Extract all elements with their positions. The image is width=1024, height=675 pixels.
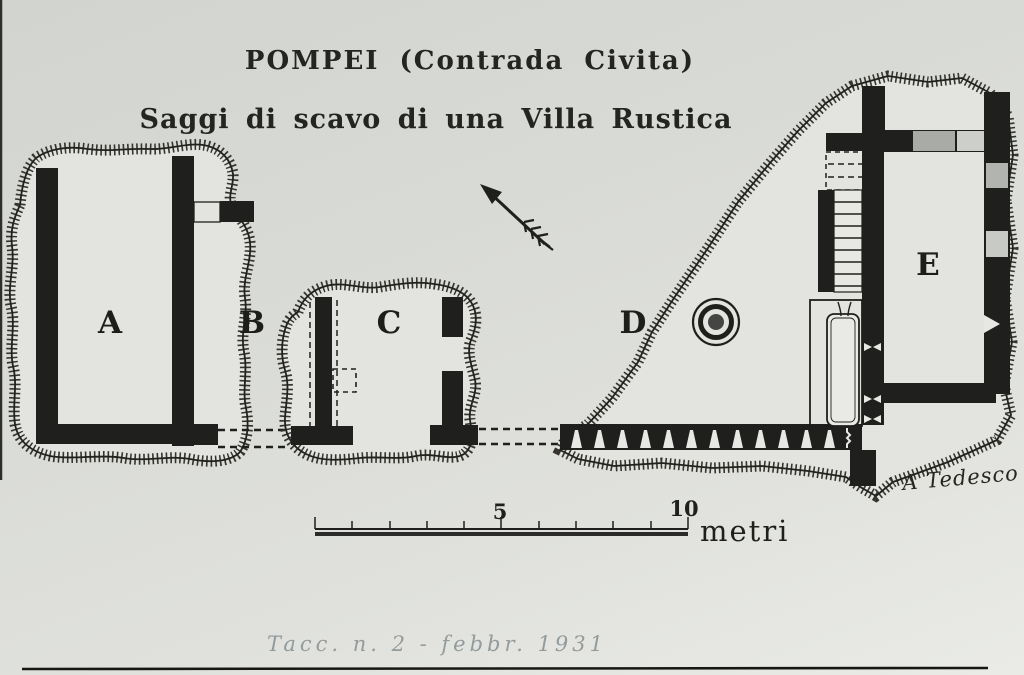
room-a-top-stub — [220, 201, 254, 222]
plan-title-line2: Saggi di scavo di una Villa Rustica — [140, 104, 733, 135]
scale-label-5: 5 — [493, 499, 508, 524]
scale-label-10: 10 — [669, 496, 698, 521]
room-a-left-wall — [36, 168, 58, 438]
e-right-opening-light — [986, 231, 1008, 257]
area-label-b: B — [239, 305, 265, 341]
room-a-wall-foot — [194, 427, 218, 445]
handwritten-note: Tacc. n. 2 - febbr. 1931 — [267, 632, 607, 656]
area-label-c: C — [377, 305, 402, 341]
room-c-right-top-wall — [442, 297, 463, 337]
room-c-right-foot — [430, 425, 478, 445]
room-a-doorway — [194, 202, 220, 222]
scan-edge-bottom — [22, 668, 988, 669]
area-label-a: A — [97, 305, 123, 341]
wall-stub-below — [850, 450, 876, 486]
trench-a-b — [10, 144, 254, 461]
room-c-right-bottom-wall — [442, 371, 463, 428]
e-right-opening — [986, 163, 1008, 188]
area-label-d: D — [620, 305, 647, 341]
scale-bar: 5 10 metri — [315, 496, 789, 548]
scanned-plan-page: POMPEI (Contrada Civita) Saggi di scavo … — [0, 0, 1024, 675]
basin-inner — [827, 314, 859, 426]
room-a-right-wall — [172, 156, 194, 446]
trench-d-e — [560, 76, 1013, 496]
e-bottom-wall — [862, 383, 996, 403]
room-c-left-wall — [315, 297, 332, 433]
scale-unit-label: metri — [700, 514, 789, 548]
stair-flight — [834, 190, 862, 292]
north-arrow-icon — [480, 184, 553, 250]
room-c-left-foot — [291, 426, 353, 445]
plan-title-line1: POMPEI (Contrada Civita) — [245, 46, 695, 76]
area-label-e: E — [916, 247, 940, 283]
stair-left-wall — [818, 190, 834, 292]
e-top-opening — [913, 131, 955, 151]
e-topleft-wall — [826, 133, 884, 151]
excavation-plan-svg: POMPEI (Contrada Civita) Saggi di scavo … — [0, 0, 1024, 675]
well-icon — [693, 299, 739, 345]
